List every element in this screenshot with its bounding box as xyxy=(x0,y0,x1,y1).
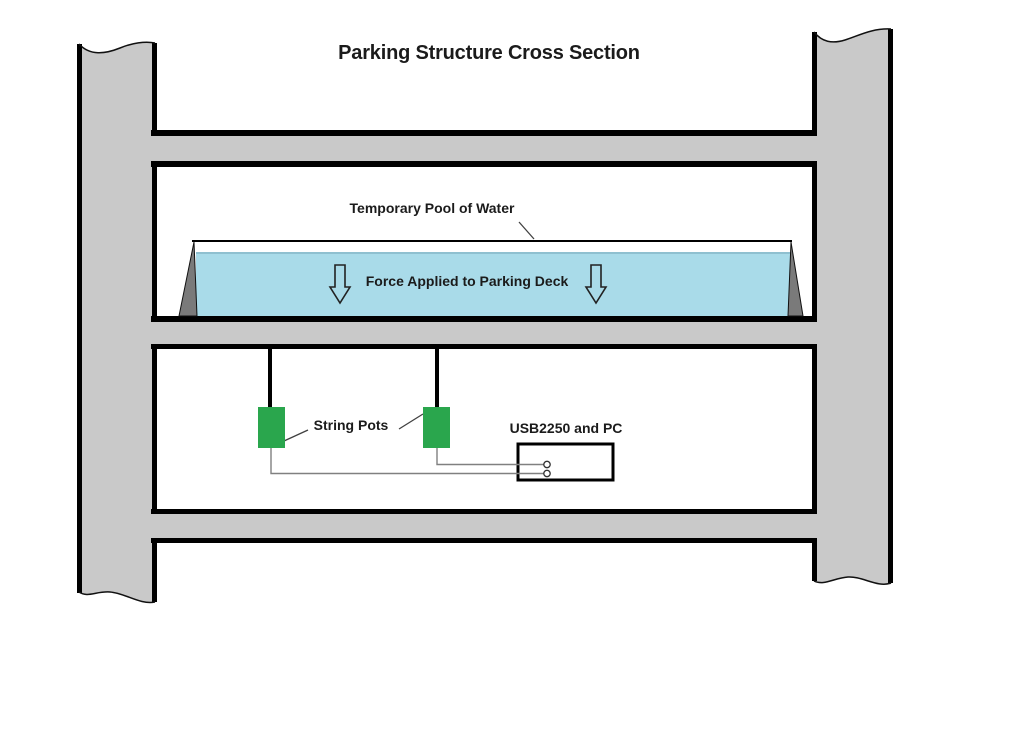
right-column-body xyxy=(814,29,891,584)
pool-water-surface-line xyxy=(196,252,791,254)
string-pots-leader-left xyxy=(284,430,308,441)
parking-deck-body xyxy=(151,322,817,344)
right-column-inner-border xyxy=(812,32,817,581)
string-pots-label: String Pots xyxy=(314,418,389,433)
lower-slab-bottom-border xyxy=(151,538,817,543)
right-column-outer-border xyxy=(888,29,893,583)
signal-wire-left-pot xyxy=(271,448,544,474)
parking-deck-top-border xyxy=(151,316,817,322)
upper-slab-bottom-border xyxy=(151,161,817,167)
diagram-shapes xyxy=(0,0,1024,738)
parking-deck-bottom-border xyxy=(151,344,817,349)
upper-slab-body xyxy=(151,136,817,161)
string-right xyxy=(435,349,439,407)
pool-left-berm xyxy=(179,242,197,316)
string-pot-left xyxy=(258,407,285,448)
daq-terminal-top xyxy=(544,461,550,467)
parking-structure-diagram: Parking Structure Cross Section Temporar… xyxy=(0,0,1024,738)
string-left xyxy=(268,349,272,407)
lower-slab-body xyxy=(151,514,817,538)
string-pots-leader-right xyxy=(399,414,423,429)
right-column xyxy=(812,29,893,584)
parking-deck-slab xyxy=(151,316,817,349)
lower-slab-top-border xyxy=(151,509,817,514)
upper-slab xyxy=(151,130,817,167)
left-column xyxy=(77,42,157,602)
left-column-body xyxy=(79,42,155,602)
diagram-title: Parking Structure Cross Section xyxy=(338,42,640,64)
pool-leader-line xyxy=(519,222,534,239)
daq-terminal-bottom xyxy=(544,470,550,476)
pool-rim-line xyxy=(192,240,792,242)
daq-box xyxy=(518,444,613,480)
upper-slab-top-border xyxy=(151,130,817,136)
pool-label: Temporary Pool of Water xyxy=(350,201,515,216)
force-label: Force Applied to Parking Deck xyxy=(366,274,569,289)
lower-slab xyxy=(151,509,817,543)
daq-label: USB2250 and PC xyxy=(510,421,623,436)
string-pot-right xyxy=(423,407,450,448)
left-column-outer-border xyxy=(77,44,82,593)
pool-right-berm xyxy=(788,242,803,316)
